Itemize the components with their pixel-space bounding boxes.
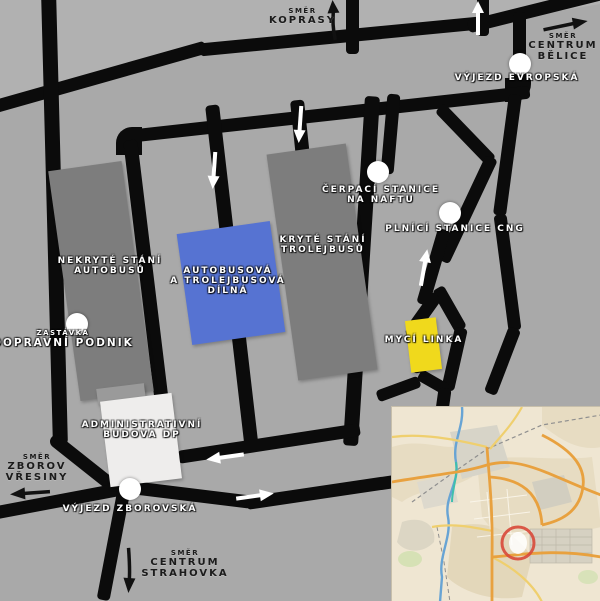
sign-belice: SMĚR CENTRUM BĚLICE [518, 32, 600, 62]
label-vyjezd-zborovska: VÝJEZD ZBOROVSKÁ [63, 504, 198, 514]
label-nekryte-stani: NEKRYTÉ STÁNÍ AUTOBUSŮ [58, 256, 163, 276]
building-label: ADMINISTRATIVNÍ [82, 420, 203, 430]
inset-highlight-spot [509, 532, 527, 554]
sign-small-text: SMĚR [255, 7, 350, 15]
station-label: PLNÍCÍ STANICE CNG [385, 224, 524, 234]
building-admin [100, 393, 182, 487]
label-admin-budova: ADMINISTRATIVNÍ BUDOVA DP [82, 420, 203, 440]
inset-map-graphic [392, 407, 600, 601]
station-label: ČERPACÍ STANICE [322, 185, 440, 195]
arrow-down-icon [118, 545, 139, 594]
label-plnici-stanice-cng: PLNÍCÍ STANICE CNG [385, 224, 524, 234]
depot-map: SMĚR KOPRASY SMĚR CENTRUM BĚLICE SMĚR ZB… [0, 0, 600, 601]
station-label: DOPRAVNÍ PODNIK [0, 337, 134, 349]
road-segment [375, 376, 421, 403]
arrow-left-icon [7, 483, 52, 502]
marker-cerpaci-stanice [367, 161, 389, 183]
sign-text: CENTRUM [140, 557, 230, 568]
road-segment [484, 326, 521, 396]
arrow-down-icon [292, 104, 309, 145]
station-small-label: ZASTÁVKA [0, 329, 134, 337]
station-label: NA NAFTU [322, 195, 440, 205]
sign-text: ZBOROV [0, 461, 82, 472]
road-segment [493, 94, 522, 217]
city-overview-inset [391, 406, 600, 601]
marker-vyjezd-zborovska [119, 478, 141, 500]
road-segment-loop [432, 285, 467, 333]
arrow-down-icon [206, 150, 223, 191]
building-label: MYCÍ LINKA [385, 335, 464, 345]
sign-text: KOPRASY [255, 15, 350, 26]
label-kryte-stani: KRYTÉ STÁNÍ TROLEJBUSŮ [279, 235, 366, 255]
sign-text: CENTRUM [518, 40, 600, 51]
sign-strahovka: SMĚR CENTRUM STRAHOVKA [140, 549, 230, 579]
sign-small-text: SMĚR [140, 549, 230, 557]
label-dilna: AUTOBUSOVÁ A TROLEJBUSOVÁ DÍLNÁ [170, 266, 285, 296]
label-cerpaci-stanice: ČERPACÍ STANICE NA NAFTU [322, 185, 440, 205]
sign-small-text: SMĚR [518, 32, 600, 40]
building-label: KRYTÉ STÁNÍ [279, 235, 366, 245]
sign-vresiny: SMĚR ZBOROV VŘESINY [0, 453, 82, 483]
building-myci-linka [405, 317, 442, 372]
building-label: AUTOBUSŮ [58, 266, 163, 276]
station-label: VÝJEZD ZBOROVSKÁ [63, 504, 198, 514]
marker-plnici-stanice-cng [439, 202, 461, 224]
building-label: AUTOBUSOVÁ [170, 266, 285, 276]
building-label: TROLEJBUSŮ [279, 245, 366, 255]
label-zastavka-dopravni-podnik: ZASTÁVKA DOPRAVNÍ PODNIK [0, 329, 134, 349]
building-label: A TROLEJBUSOVÁ [170, 276, 285, 286]
arrow-up-icon [471, 1, 485, 37]
sign-text: BĚLICE [518, 51, 600, 62]
building-label: DÍLNÁ [170, 286, 285, 296]
sign-koprasy: SMĚR KOPRASY [255, 7, 350, 26]
building-label: BUDOVA DP [82, 430, 203, 440]
label-vyjezd-evropska: VÝJEZD EVROPSKÁ [455, 73, 580, 83]
building-label: NEKRYTÉ STÁNÍ [58, 256, 163, 266]
sign-small-text: SMĚR [0, 453, 82, 461]
sign-text: STRAHOVKA [140, 568, 230, 579]
sign-text: VŘESINY [0, 472, 82, 483]
label-myci-linka: MYCÍ LINKA [385, 335, 464, 345]
station-label: VÝJEZD EVROPSKÁ [455, 73, 580, 83]
